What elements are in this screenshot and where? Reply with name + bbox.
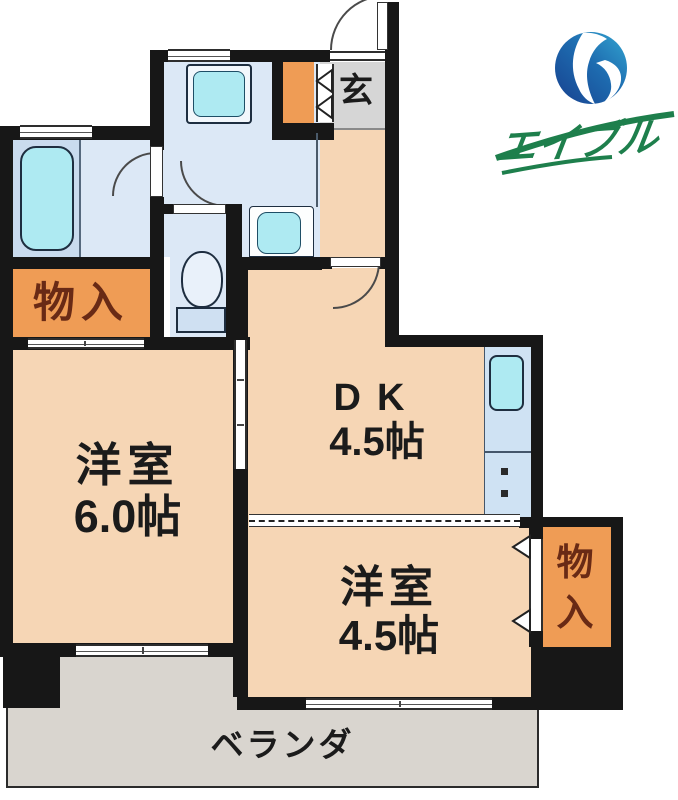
window-icon xyxy=(20,125,92,139)
toilet-door-leaf xyxy=(173,204,226,214)
toilet-bowl-icon xyxy=(181,251,223,308)
bifold-door-icon xyxy=(510,608,532,634)
dk-door-leaf xyxy=(330,257,381,267)
kitchen-counter-divider xyxy=(484,451,531,453)
western-room-large-label: 洋室 6.0帖 xyxy=(25,440,230,542)
wall-bath-storage-divider xyxy=(0,257,164,269)
washing-machine-pan-inner xyxy=(193,71,245,117)
bifold-door-icon xyxy=(314,94,334,120)
storage-left-label: 物入 xyxy=(16,279,146,326)
open-partition-dk-western-small xyxy=(249,514,520,527)
partition-washroom-hall xyxy=(316,133,318,207)
wall-shoe-cabinet-left xyxy=(272,62,283,123)
sliding-door-icon xyxy=(234,340,247,469)
washbasin-bowl-icon xyxy=(257,212,301,254)
room-size: 4.5帖 xyxy=(288,420,466,465)
bathroom-door-leaf xyxy=(150,146,163,197)
room-name: DK xyxy=(288,377,466,420)
western-room-small-label: 洋室 4.5帖 xyxy=(293,563,485,659)
floor-plan-canvas: 玄 物入 洋室 6.0帖 DK 4.5帖 洋室 4.5帖 物入 ベランダ xyxy=(0,0,678,800)
stove-knob-icon xyxy=(501,490,508,497)
toilet-tank-icon xyxy=(176,307,226,333)
veranda-label: ベランダ xyxy=(175,727,390,764)
wall-washroom-bottom xyxy=(228,257,322,270)
brand-name: エイブル xyxy=(493,104,663,173)
wall-bath-washroom-lower xyxy=(150,197,164,350)
window-icon xyxy=(306,698,492,710)
room-size: 4.5帖 xyxy=(293,612,485,659)
stove-knob-icon xyxy=(501,468,508,475)
window-icon xyxy=(76,644,208,657)
room-name: 洋室 xyxy=(293,563,485,612)
bifold-door-icon xyxy=(314,68,334,94)
wall-left-outer xyxy=(0,126,13,656)
wall-storage-right-bottom-block xyxy=(531,645,623,710)
shoe-cabinet-area xyxy=(283,62,314,123)
wall-dk-top-right xyxy=(396,335,543,347)
wall-under-shoe-cabinet xyxy=(272,123,334,140)
bifold-door-icon xyxy=(510,534,532,560)
bathroom-divider-line xyxy=(79,140,81,257)
entrance-step-line xyxy=(334,128,385,130)
sliding-door-icon xyxy=(28,338,144,349)
entrance-label: 玄 xyxy=(334,72,378,110)
bathtub-icon xyxy=(20,146,74,251)
wall-toilet-right xyxy=(226,204,242,350)
wall-entrance-right xyxy=(385,2,399,347)
hallway-area xyxy=(320,130,385,257)
able-logo: エイブル xyxy=(492,18,678,188)
dk-label: DK 4.5帖 xyxy=(288,377,466,464)
entrance-door-leaf xyxy=(377,2,388,50)
room-size: 6.0帖 xyxy=(25,492,230,542)
entrance-threshold xyxy=(330,51,385,61)
wall-dk-right xyxy=(531,347,543,519)
window-icon xyxy=(168,49,230,62)
storage-right-label: 物入 xyxy=(553,538,597,638)
pillar-block-bottom-left xyxy=(3,648,60,708)
room-name: 洋室 xyxy=(25,440,230,492)
kitchen-sink-icon xyxy=(489,355,524,411)
